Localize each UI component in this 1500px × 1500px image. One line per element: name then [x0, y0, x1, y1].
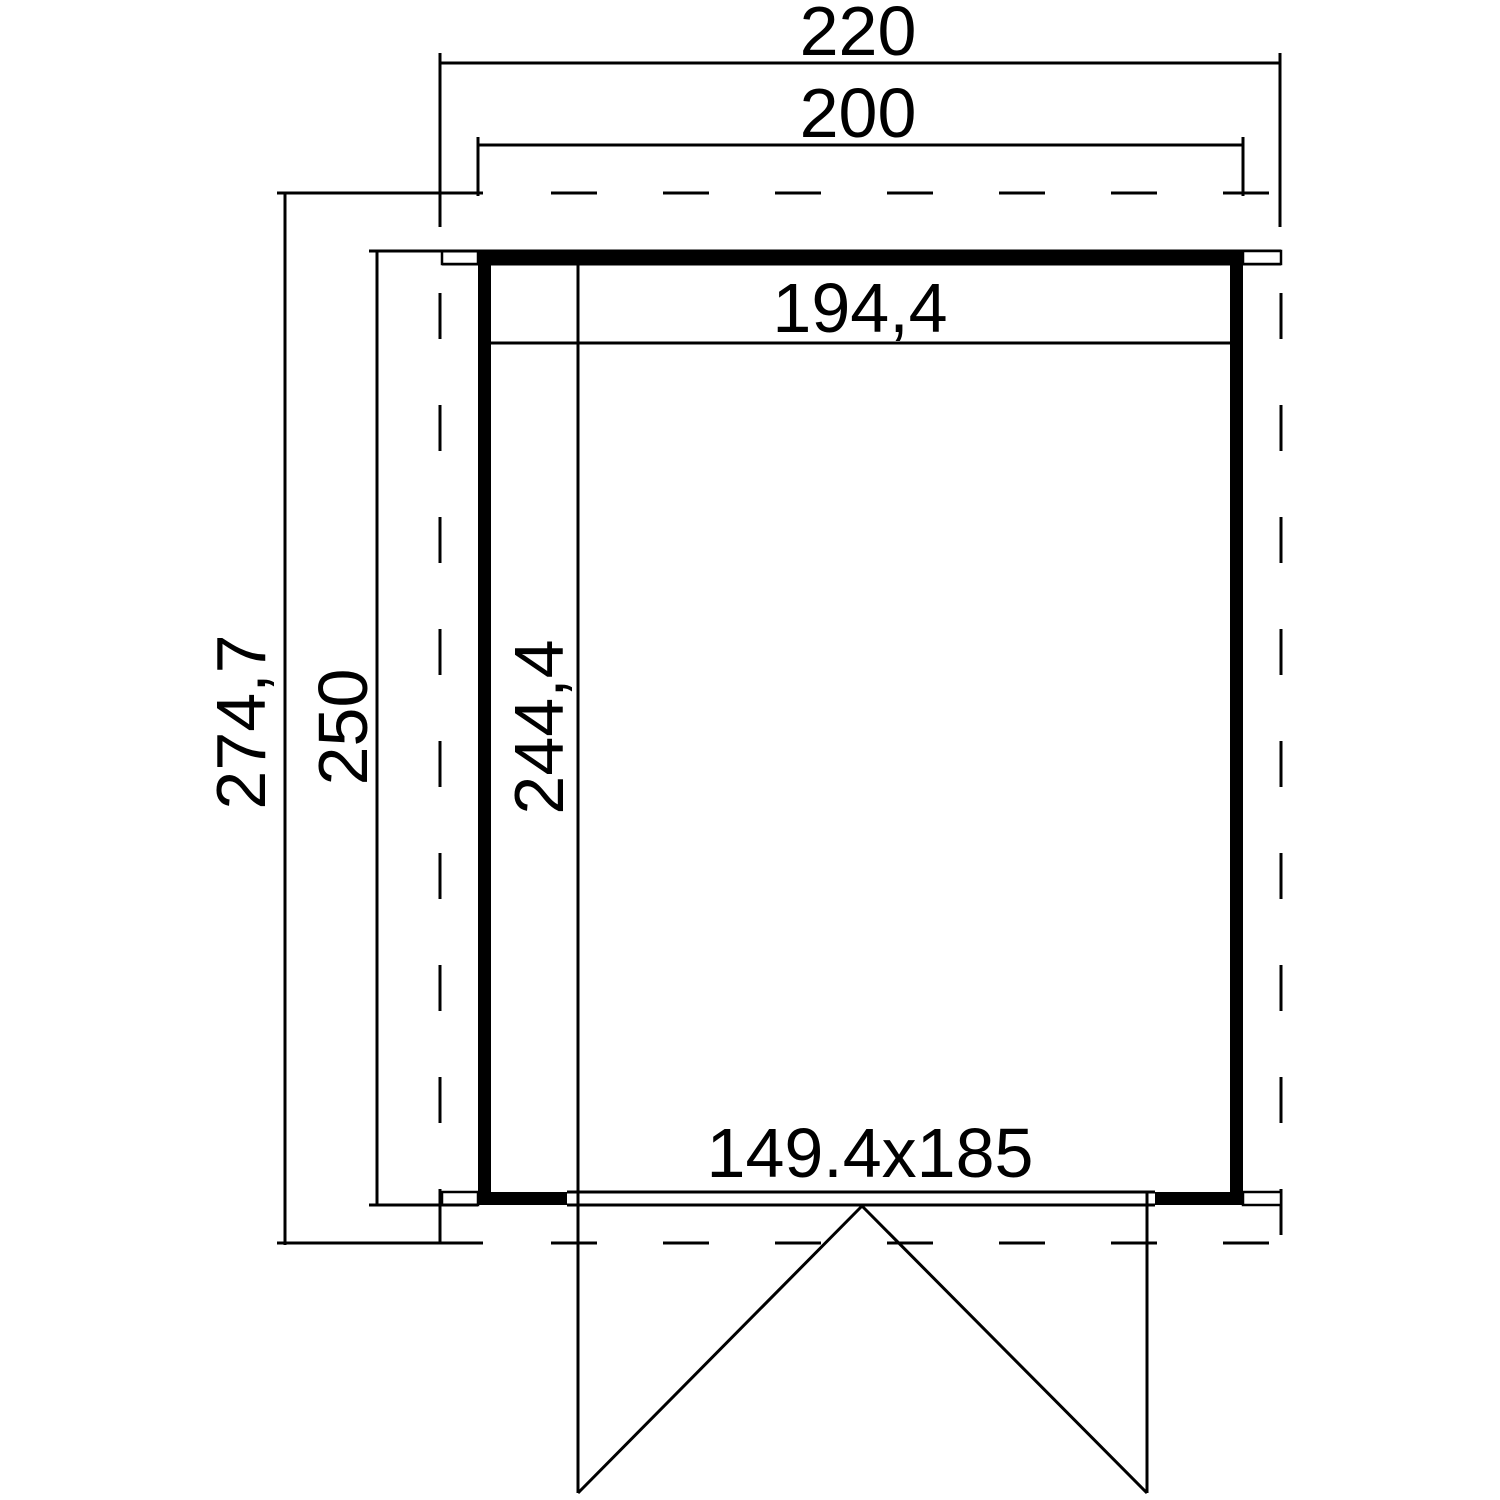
floor-plan-page: 220 200 274,7 250 194,4 244,4 149.4x185 — [0, 0, 1500, 1500]
label-door-dimensions: 149.4x185 — [707, 1114, 1034, 1192]
label-interior-width: 194,4 — [772, 269, 947, 347]
wall-bottom-right-segment — [1155, 1192, 1243, 1205]
wall-right — [1230, 251, 1243, 1205]
floor-plan-drawing: 220 200 274,7 250 194,4 244,4 149.4x185 — [0, 0, 1500, 1500]
notch-top-right — [1243, 251, 1281, 264]
notch-top-left — [442, 251, 478, 264]
notch-bottom-left — [442, 1192, 478, 1205]
wall-left — [478, 251, 491, 1205]
wall-top — [478, 251, 1243, 264]
label-overall-width: 220 — [800, 0, 917, 70]
label-overall-depth: 274,7 — [202, 634, 280, 809]
label-interior-depth: 244,4 — [500, 639, 578, 814]
wall-bottom-left-segment — [478, 1192, 567, 1205]
notch-bottom-right — [1243, 1192, 1281, 1205]
label-base-width: 200 — [800, 74, 917, 152]
label-base-depth: 250 — [304, 669, 382, 786]
